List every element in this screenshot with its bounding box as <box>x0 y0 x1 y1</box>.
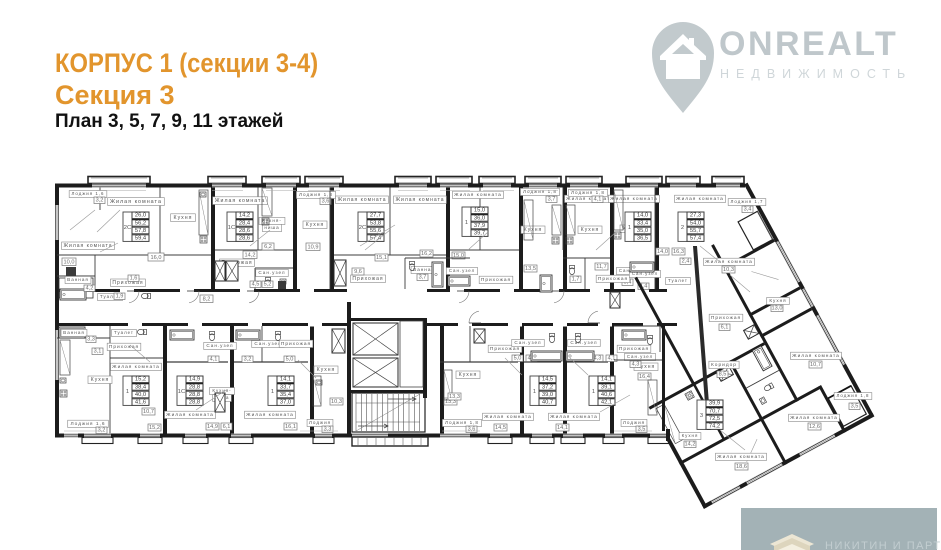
svg-text:72,5: 72,5 <box>709 416 720 422</box>
svg-text:14,0: 14,0 <box>657 249 668 255</box>
svg-text:59,4: 59,4 <box>135 236 147 242</box>
svg-text:12,6: 12,6 <box>809 424 820 430</box>
svg-text:3,2: 3,2 <box>96 198 104 204</box>
svg-text:14,9: 14,9 <box>189 377 200 383</box>
svg-text:Жилая комната: Жилая комната <box>484 414 532 420</box>
svg-text:Кухня-: Кухня- <box>212 388 231 393</box>
svg-text:1,9: 1,9 <box>116 294 124 300</box>
svg-text:53,8: 53,8 <box>370 220 381 226</box>
svg-text:Сан.узел: Сан.узел <box>206 343 233 348</box>
svg-text:Туалет: Туалет <box>114 330 134 335</box>
svg-text:27,3: 27,3 <box>690 213 701 219</box>
svg-text:8,5: 8,5 <box>719 372 727 378</box>
svg-text:Прихожая: Прихожая <box>481 277 511 283</box>
svg-text:Лоджия 1,8: Лоджия 1,8 <box>523 189 557 194</box>
svg-text:Жилая комната: Жилая комната <box>110 199 162 205</box>
svg-text:13,3: 13,3 <box>449 394 460 400</box>
svg-text:Жилая комната: Жилая комната <box>550 414 598 420</box>
svg-text:НЕДВИЖИМОСТЬ: НЕДВИЖИМОСТЬ <box>720 67 912 81</box>
svg-text:Прихожая: Прихожая <box>352 276 383 282</box>
svg-text:10,7: 10,7 <box>143 409 154 415</box>
svg-text:36,0: 36,0 <box>474 215 485 221</box>
svg-text:3,3: 3,3 <box>324 427 332 433</box>
svg-text:Кухня: Кухня <box>682 433 699 438</box>
svg-text:1,7: 1,7 <box>572 277 580 283</box>
svg-text:74,2: 74,2 <box>709 424 720 430</box>
svg-text:13,0: 13,0 <box>772 306 783 312</box>
svg-text:4,1: 4,1 <box>594 197 602 203</box>
svg-text:39,0: 39,0 <box>542 392 553 398</box>
svg-text:Жилая комната: Жилая комната <box>395 197 444 203</box>
svg-text:1: 1 <box>592 389 595 395</box>
svg-text:2: 2 <box>681 225 684 231</box>
svg-text:1: 1 <box>271 389 274 395</box>
svg-text:35,0: 35,0 <box>637 228 648 234</box>
svg-text:Прихожая: Прихожая <box>598 276 628 282</box>
svg-text:15,2: 15,2 <box>149 425 160 431</box>
svg-text:3,7: 3,7 <box>548 197 556 203</box>
svg-text:Кухня: Кухня <box>581 227 599 233</box>
svg-text:6,1: 6,1 <box>223 424 231 430</box>
svg-text:4,1: 4,1 <box>210 357 218 363</box>
svg-text:Лоджия 1,7: Лоджия 1,7 <box>731 199 764 204</box>
svg-text:Кухня: Кухня <box>306 222 324 228</box>
svg-text:5,0: 5,0 <box>286 357 294 363</box>
svg-text:14,0: 14,0 <box>637 213 648 219</box>
svg-text:10,3: 10,3 <box>723 267 734 273</box>
svg-text:28,8: 28,8 <box>189 392 200 398</box>
svg-text:28,8: 28,8 <box>189 400 200 406</box>
svg-text:1: 1 <box>465 220 468 226</box>
svg-text:14,1: 14,1 <box>557 425 568 431</box>
svg-text:4,2: 4,2 <box>86 286 94 292</box>
svg-text:9,6: 9,6 <box>354 269 362 275</box>
svg-text:Лоджия: Лоджия <box>623 420 645 425</box>
svg-text:14,9: 14,9 <box>207 424 218 430</box>
svg-text:3,5: 3,5 <box>638 427 646 433</box>
svg-text:Жилая комната: Жилая комната <box>112 364 160 370</box>
svg-text:Жилая комната: Жилая комната <box>454 192 502 198</box>
svg-text:26,0: 26,0 <box>135 213 146 219</box>
svg-text:Кухня: Кухня <box>459 372 477 378</box>
svg-text:33,7: 33,7 <box>280 384 291 390</box>
svg-text:15,0: 15,0 <box>474 208 485 214</box>
svg-text:28,4: 28,4 <box>239 220 251 226</box>
svg-text:35,4: 35,4 <box>280 392 292 398</box>
svg-text:2С: 2С <box>359 225 366 231</box>
svg-text:Жилая комната: Жилая комната <box>215 198 265 204</box>
svg-text:Жилая комната: Жилая комната <box>337 197 386 203</box>
svg-text:10,0: 10,0 <box>64 260 75 266</box>
svg-text:14,5: 14,5 <box>542 377 553 383</box>
svg-text:28,6: 28,6 <box>239 236 250 242</box>
svg-text:41,6: 41,6 <box>135 400 146 406</box>
svg-text:Жилая комната: Жилая комната <box>792 353 840 359</box>
svg-text:4,3: 4,3 <box>632 362 640 368</box>
svg-text:11,7: 11,7 <box>596 264 606 270</box>
svg-text:5,0: 5,0 <box>514 356 522 362</box>
svg-text:ниша: ниша <box>264 225 279 230</box>
svg-text:57,4: 57,4 <box>690 236 702 242</box>
svg-text:Сан.узел: Сан.узел <box>514 340 541 345</box>
svg-text:16,3: 16,3 <box>673 249 684 255</box>
svg-text:Жилая комната: Жилая комната <box>705 259 753 265</box>
svg-text:3,3: 3,3 <box>87 337 95 343</box>
svg-text:40,6: 40,6 <box>601 392 612 398</box>
svg-text:36,5: 36,5 <box>637 236 648 242</box>
svg-text:Ванная: Ванная <box>63 330 85 335</box>
svg-text:Жилая комната: Жилая комната <box>166 412 214 418</box>
svg-text:39,1: 39,1 <box>601 384 612 390</box>
svg-text:14,1: 14,1 <box>601 377 612 383</box>
svg-text:56,2: 56,2 <box>135 220 146 226</box>
svg-text:33,4: 33,4 <box>637 220 649 226</box>
svg-text:57,8: 57,8 <box>135 228 146 234</box>
svg-text:3,6: 3,6 <box>322 199 330 205</box>
svg-text:55,7: 55,7 <box>690 228 701 234</box>
svg-text:3,1: 3,1 <box>94 349 102 355</box>
svg-text:5,2: 5,2 <box>264 282 272 288</box>
svg-text:Лоджия 1,6: Лоджия 1,6 <box>72 191 105 196</box>
svg-text:2С: 2С <box>124 225 131 231</box>
svg-text:3,6: 3,6 <box>468 427 476 433</box>
svg-text:16,4: 16,4 <box>639 374 650 380</box>
svg-text:37,2: 37,2 <box>542 384 553 390</box>
svg-text:14,5: 14,5 <box>495 425 506 431</box>
svg-text:14,2: 14,2 <box>245 253 256 259</box>
svg-text:Жилая комната: Жилая комната <box>676 196 724 202</box>
svg-text:Лоджия 1,8: Лоджия 1,8 <box>299 192 333 197</box>
svg-text:Кухня: Кухня <box>317 367 335 373</box>
svg-text:10,9: 10,9 <box>308 245 319 251</box>
svg-text:14,1: 14,1 <box>280 377 291 383</box>
svg-text:15,2: 15,2 <box>135 377 146 383</box>
svg-text:6,1: 6,1 <box>721 325 729 331</box>
svg-text:НИКИТИН И ПАРТНЕРЫ: НИКИТИН И ПАРТНЕРЫ <box>825 540 941 550</box>
svg-text:1С: 1С <box>178 389 185 395</box>
svg-text:Коридор: Коридор <box>711 362 737 368</box>
svg-text:Прихожая: Прихожая <box>490 346 520 352</box>
svg-text:Жилая комната: Жилая комната <box>246 412 294 418</box>
svg-text:4,1: 4,1 <box>608 356 616 362</box>
svg-text:16,0: 16,0 <box>151 255 162 261</box>
svg-text:2,4: 2,4 <box>682 259 690 265</box>
svg-text:1: 1 <box>126 389 129 395</box>
svg-text:18,6: 18,6 <box>736 464 747 470</box>
svg-text:1: 1 <box>533 389 536 395</box>
svg-text:Лоджия 1,6: Лоджия 1,6 <box>71 421 106 427</box>
svg-text:39,9: 39,9 <box>709 401 720 407</box>
svg-text:14,2: 14,2 <box>685 442 696 448</box>
svg-text:10,3: 10,3 <box>331 399 342 405</box>
svg-text:Жилая комната: Жилая комната <box>717 454 765 460</box>
svg-text:Сан.узел: Сан.узел <box>449 268 475 273</box>
svg-text:54,0: 54,0 <box>690 220 701 226</box>
svg-text:70,7: 70,7 <box>709 408 720 414</box>
svg-text:Жилая комната: Жилая комната <box>610 196 658 202</box>
svg-text:37,0: 37,0 <box>280 400 291 406</box>
svg-text:3,2: 3,2 <box>244 357 252 363</box>
svg-text:Кухня: Кухня <box>91 377 109 383</box>
svg-text:Кухня: Кухня <box>769 298 786 303</box>
svg-text:Жилая комната: Жилая комната <box>63 243 112 249</box>
svg-text:Прихожая: Прихожая <box>619 346 649 352</box>
svg-text:Ванная: Ванная <box>67 277 89 282</box>
svg-text:Прихожая: Прихожая <box>281 341 311 347</box>
svg-text:37,9: 37,9 <box>474 223 485 229</box>
svg-text:Прихожая: Прихожая <box>711 315 741 321</box>
svg-text:Лоджия 1,8: Лоджия 1,8 <box>837 393 870 398</box>
svg-text:15,1: 15,1 <box>376 255 387 261</box>
svg-text:14,2: 14,2 <box>239 213 250 219</box>
svg-text:1,6: 1,6 <box>130 276 138 282</box>
svg-text:10,7: 10,7 <box>810 362 821 368</box>
svg-text:13,5: 13,5 <box>525 266 536 272</box>
svg-text:Лоджия 1,8: Лоджия 1,8 <box>445 420 479 425</box>
svg-text:28,8: 28,8 <box>189 384 200 390</box>
svg-text:3,7: 3,7 <box>419 275 427 281</box>
svg-text:38,4: 38,4 <box>135 384 147 390</box>
svg-text:8,2: 8,2 <box>203 297 211 303</box>
svg-text:Туалет: Туалет <box>668 278 688 283</box>
svg-text:27,7: 27,7 <box>370 213 381 219</box>
svg-text:42,1: 42,1 <box>601 400 612 406</box>
svg-text:4,5: 4,5 <box>252 282 260 288</box>
svg-text:Лоджия: Лоджия <box>309 420 331 425</box>
svg-text:16,1: 16,1 <box>285 424 296 430</box>
svg-text:Кухня: Кухня <box>174 215 193 221</box>
svg-text:3,2: 3,2 <box>98 428 106 434</box>
svg-text:Сан.узел: Сан.узел <box>627 354 653 359</box>
svg-text:28,6: 28,6 <box>239 228 250 234</box>
svg-text:Жилая комната: Жилая комната <box>566 196 614 202</box>
svg-text:39,7: 39,7 <box>474 231 485 237</box>
svg-text:40,7: 40,7 <box>542 400 553 406</box>
svg-text:Сан.узел: Сан.узел <box>254 341 281 346</box>
svg-text:1: 1 <box>628 225 631 231</box>
svg-text:1С: 1С <box>228 225 235 231</box>
svg-text:3,5: 3,5 <box>851 404 859 410</box>
svg-text:40,0: 40,0 <box>135 392 146 398</box>
svg-text:Жилая комната: Жилая комната <box>790 415 838 421</box>
svg-text:Сан.узел: Сан.узел <box>570 340 597 345</box>
svg-text:Сан.узел: Сан.узел <box>258 270 285 275</box>
svg-text:3,4: 3,4 <box>744 207 752 213</box>
svg-text:55,6: 55,6 <box>370 228 381 234</box>
svg-text:3: 3 <box>700 413 703 419</box>
svg-text:ONREALT: ONREALT <box>719 25 898 63</box>
svg-text:6,2: 6,2 <box>264 244 272 250</box>
svg-text:16,2: 16,2 <box>421 251 432 257</box>
svg-text:4,3: 4,3 <box>594 356 602 362</box>
